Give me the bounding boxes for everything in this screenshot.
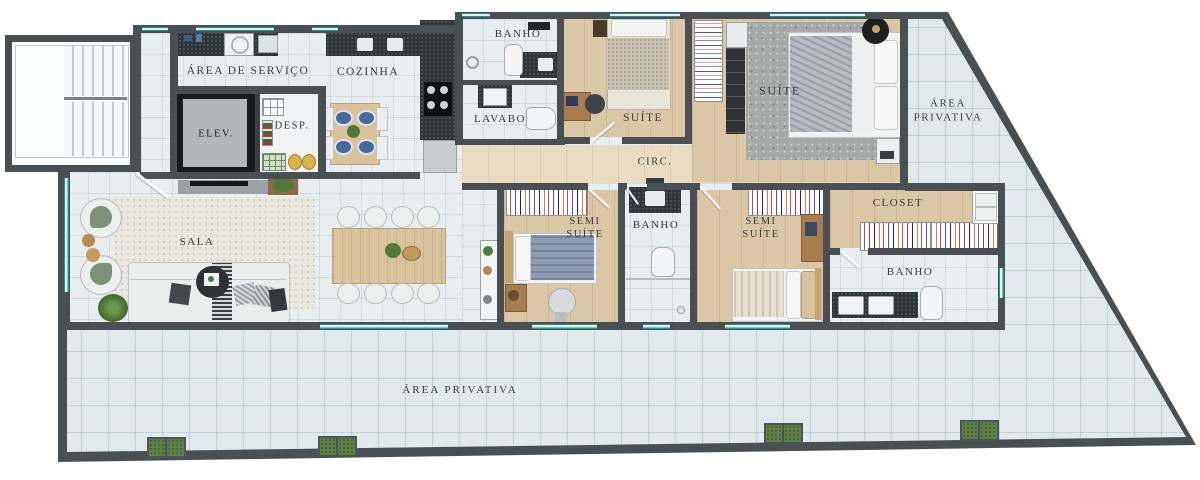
wall [462, 183, 588, 190]
stool-icon [302, 154, 316, 170]
window [64, 178, 69, 292]
planter [782, 423, 803, 444]
window [643, 324, 670, 329]
kitchen-counter-side [420, 20, 455, 140]
planter [336, 436, 357, 457]
kitchen-chair [376, 136, 388, 160]
wall [622, 137, 692, 144]
centerpiece-bowl [402, 246, 421, 261]
wall [557, 12, 564, 145]
bathroom-sink [868, 296, 894, 315]
bed-blanket [607, 38, 669, 90]
wall [732, 183, 905, 190]
place-setting [357, 139, 376, 155]
burner [427, 86, 435, 94]
wardrobe [506, 188, 588, 216]
room-label-banho-mid: BANHO [633, 219, 680, 233]
toilet-icon [526, 107, 556, 130]
pillow-icon [169, 283, 192, 306]
laptop-icon [566, 96, 578, 106]
bowl-icon [483, 295, 492, 304]
wall [830, 248, 840, 255]
wall [868, 248, 1005, 255]
bed-headboard [505, 231, 513, 283]
bathroom-sink [645, 191, 665, 206]
room-label-cozinha: COZINHA [337, 65, 399, 79]
place-setting [334, 139, 353, 155]
cabinet-icon [726, 22, 748, 48]
lavabo-sink [483, 88, 507, 106]
planter [165, 437, 186, 458]
wall [326, 172, 420, 179]
wall [905, 183, 1005, 191]
window [999, 268, 1004, 298]
wall [133, 25, 463, 33]
window [142, 27, 168, 31]
wardrobe [748, 188, 826, 216]
stool-icon [288, 154, 302, 170]
burner [440, 101, 448, 109]
dining-chair [337, 206, 360, 228]
bed-blanket [531, 235, 594, 280]
bowl-icon [483, 266, 492, 275]
dining-chair [417, 283, 440, 304]
closet-box [975, 207, 997, 221]
wall [318, 86, 326, 179]
stool-icon [508, 290, 519, 301]
stair-landing-edge [64, 97, 127, 100]
label-line: ÁREA [930, 97, 966, 109]
room-label-desp: DESP. [275, 119, 310, 132]
room-label-elev: ELEV. [198, 127, 234, 140]
wall [455, 139, 565, 145]
bed-headboard [815, 268, 821, 320]
plant-icon [98, 294, 128, 322]
wall [455, 12, 948, 19]
dining-chair [337, 283, 360, 304]
wall [170, 25, 178, 86]
room-label-suite: SUÍTE [623, 111, 663, 125]
toilet-icon [504, 44, 523, 76]
wall [455, 80, 560, 85]
dining-chair [391, 283, 414, 304]
closet-box [975, 193, 997, 207]
kitchen-sink [387, 38, 403, 51]
window [196, 27, 274, 31]
wall [140, 172, 326, 179]
dining-chair [364, 206, 387, 228]
window [320, 324, 448, 329]
service-sink [258, 35, 278, 53]
side-table [86, 248, 100, 262]
plant-icon [483, 246, 493, 256]
stair-flight [64, 102, 127, 156]
wall [685, 12, 692, 142]
plant-icon [272, 178, 294, 192]
dining-chair [364, 283, 387, 304]
room-label-banho-right: BANHO [887, 266, 934, 280]
armchair-cushion [90, 263, 112, 285]
pillow-icon [874, 40, 898, 84]
wardrobe [694, 20, 723, 102]
toilet-icon [651, 247, 675, 277]
desp-rack [262, 120, 273, 146]
tall-cabinet [726, 48, 745, 134]
wall [618, 190, 625, 330]
kitchen-sink [357, 38, 373, 51]
detergent-icon [196, 34, 202, 42]
window [725, 324, 790, 329]
room-label-area-servico: ÁREA DE SERVIÇO [187, 64, 310, 78]
room-label-circ: CIRC. [638, 155, 673, 168]
toilet-icon [920, 286, 943, 320]
pillow-icon [874, 86, 898, 130]
place-setting [334, 110, 353, 126]
shower-glass [626, 278, 690, 280]
wall [455, 12, 463, 145]
desp-crate [262, 153, 286, 171]
wall [647, 183, 700, 190]
window [770, 13, 865, 17]
dining-chair [417, 206, 440, 228]
stair-flight [64, 46, 127, 96]
shower-drain [677, 306, 685, 314]
bed-blanket [734, 271, 784, 317]
side-table [82, 234, 95, 247]
staircase [5, 35, 137, 172]
plant-icon [208, 276, 214, 282]
shower-head-icon [466, 56, 479, 69]
place-setting [357, 110, 376, 126]
armchair-cushion [90, 206, 112, 228]
office-chair-base [555, 312, 567, 322]
planter [978, 420, 999, 441]
pillow-icon [611, 19, 667, 37]
wall [900, 12, 908, 190]
fridge-icon [423, 140, 457, 173]
burner [427, 101, 435, 109]
desp-shelf [262, 98, 284, 116]
laptop-icon [805, 222, 817, 236]
kitchen-chair [376, 107, 388, 131]
wall [690, 190, 697, 330]
floor-plan: ÁREA DE SERVIÇO COZINHA ELEV. DESP. BANH… [0, 0, 1200, 480]
wall [170, 86, 326, 94]
label-line: SEMI [745, 216, 776, 227]
tv-icon [190, 181, 248, 186]
wall [823, 183, 830, 330]
label-line: SUÍTE [566, 229, 603, 240]
room-label-area-privativa-top: ÁREA PRIVATIVA [914, 97, 983, 125]
bathroom-sink [538, 58, 553, 71]
washer-drum [231, 36, 249, 54]
bathroom-sink [838, 296, 864, 315]
window [532, 324, 597, 329]
detergent-icon [184, 35, 192, 41]
wall [560, 137, 590, 144]
burner [440, 86, 448, 94]
nightstand-drawer [880, 151, 894, 159]
centerpiece-plant [347, 125, 360, 138]
room-label-semi-suite-1: SEMI SUÍTE [566, 215, 603, 241]
window [610, 13, 680, 17]
pillow-icon [269, 288, 288, 312]
room-label-lavabo: LAVABO [474, 113, 526, 127]
lamp-icon [872, 25, 880, 33]
office-chair [585, 94, 605, 114]
dining-chair [391, 206, 414, 228]
label-line: SUÍTE [742, 229, 779, 240]
pillow-icon [786, 271, 801, 319]
bed-sheet [852, 36, 874, 132]
room-label-suite-master: SUÍTE [759, 84, 801, 99]
room-label-banho-top: BANHO [495, 28, 542, 42]
room-label-closet: CLOSET [873, 197, 924, 211]
centerpiece-plant [385, 243, 401, 258]
room-label-area-privativa-bottom: ÁREA PRIVATIVA [402, 384, 517, 398]
pillow-icon [515, 236, 531, 281]
room-label-semi-suite-2: SEMI SUÍTE [742, 215, 779, 241]
wall [497, 183, 504, 330]
wardrobe-divider [930, 222, 932, 249]
pillow-icon [801, 271, 816, 319]
label-line: PRIVATIVA [914, 111, 983, 123]
label-line: SEMI [569, 216, 600, 227]
room-label-sala: SALA [180, 236, 215, 250]
wall [170, 86, 177, 179]
window [462, 13, 490, 17]
window [312, 27, 338, 31]
